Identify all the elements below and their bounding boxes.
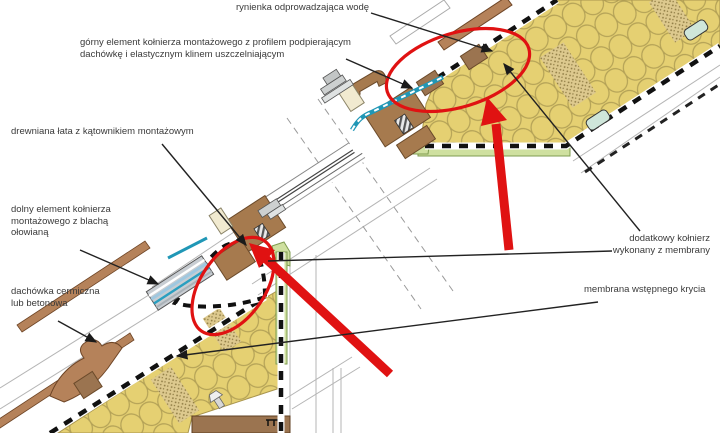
- label-drewniana: drewniana łata z kątownikiem montażowym: [11, 126, 194, 138]
- label-dodatkowy: dodatkowy kołnierz wykonany z membrany: [590, 233, 710, 256]
- label-dolny: dolny element kołnierza montażowego z bl…: [11, 204, 111, 239]
- leader-dodatkowy-bottom: [268, 251, 612, 261]
- bottom-beam: [192, 416, 290, 433]
- label-rynienka: rynienka odprowadzająca wodę: [236, 2, 369, 14]
- sill-gutter-teal-line: [168, 238, 207, 258]
- label-gorny: górny element kołnierza montażowego z pr…: [80, 37, 351, 60]
- label-membrana: membrana wstępnego krycia: [584, 284, 705, 296]
- diagram-canvas: rynienka odprowadzająca wodę górny eleme…: [0, 0, 720, 433]
- label-dachowka: dachówka cermiczna lub betonowa: [11, 286, 100, 309]
- sill-timber-light: [209, 208, 233, 234]
- leader-drewniana: [162, 144, 246, 245]
- red-arrow-top: [481, 97, 509, 250]
- roof-section-upper: [390, 0, 720, 172]
